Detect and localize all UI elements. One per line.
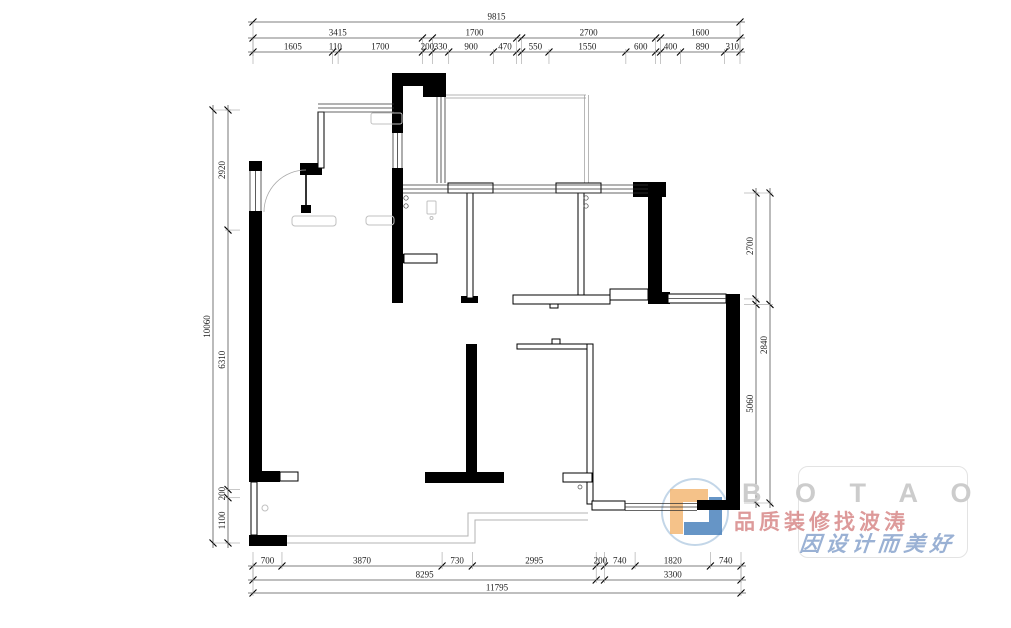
dim-label: 1550 [578, 42, 597, 52]
dim-label: 700 [261, 556, 275, 566]
dim-label: 550 [529, 42, 543, 52]
dim-label: 2995 [525, 556, 544, 566]
dim-chain-left-detail: 292063102001100 [217, 105, 240, 548]
dim-label: 740 [719, 556, 733, 566]
dim-label: 200 [217, 486, 227, 500]
dim-label: 600 [634, 42, 648, 52]
dimension-chains: 9815341517002700160016051101700200330900… [0, 0, 1011, 628]
dim-label: 9815 [488, 12, 507, 22]
dim-label: 1600 [691, 28, 710, 38]
dim-label: 200 [594, 556, 608, 566]
dim-label: 3415 [329, 28, 348, 38]
dim-label: 1820 [664, 556, 683, 566]
dim-label: 1700 [466, 28, 485, 38]
dim-label: 1100 [217, 511, 227, 529]
dim-label: 2700 [745, 236, 755, 255]
dim-label: 330 [434, 42, 448, 52]
dim-label: 5060 [745, 394, 755, 413]
dim-label: 1700 [371, 42, 390, 52]
dim-label: 11795 [486, 583, 509, 593]
dim-label: 740 [613, 556, 627, 566]
dim-label: 900 [464, 42, 478, 52]
dim-label: 890 [696, 42, 710, 52]
dim-chain-right-inner: 27005060 [744, 188, 760, 508]
dim-label: 10060 [202, 315, 212, 338]
dim-label: 2700 [580, 28, 599, 38]
dim-chain-bottom-detail: 700387073029952007401820740 [248, 552, 746, 570]
dim-label: 1605 [284, 42, 303, 52]
dim-label: 400 [664, 42, 678, 52]
dim-label: 200 [421, 42, 435, 52]
dim-label: 470 [498, 42, 512, 52]
dim-chain-top-detail: 1605110170020033090047055015506004008903… [248, 42, 745, 65]
dim-label: 3870 [353, 556, 372, 566]
floorplan-canvas: 9815341517002700160016051101700200330900… [0, 0, 1011, 628]
dim-label: 310 [726, 42, 740, 52]
dim-label: 6310 [217, 350, 227, 369]
dim-label: 8295 [416, 570, 435, 580]
dim-label: 2840 [759, 336, 769, 355]
dim-label: 3300 [664, 570, 683, 580]
dim-label: 2920 [217, 161, 227, 180]
dim-label: 110 [329, 42, 343, 52]
dim-label: 730 [450, 556, 464, 566]
